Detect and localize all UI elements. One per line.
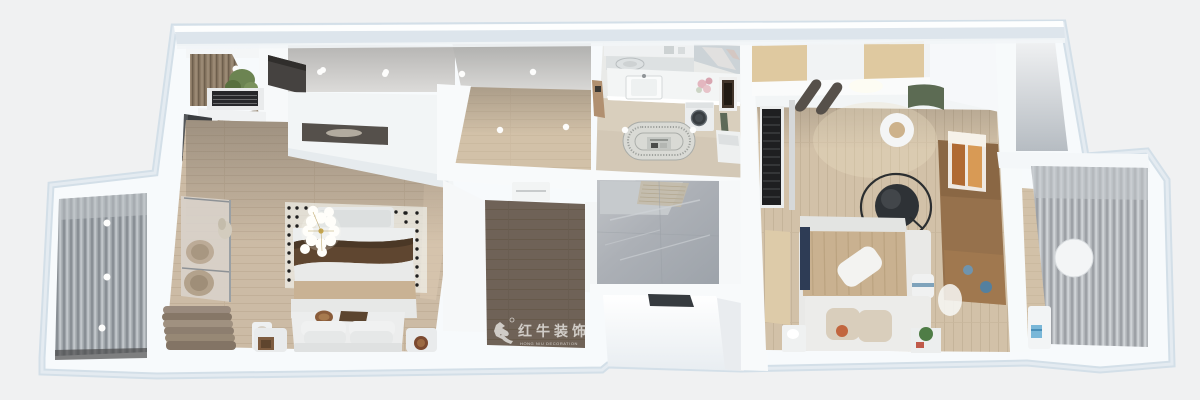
svg-text:红: 红 <box>518 323 532 339</box>
svg-text:饰: 饰 <box>572 323 586 339</box>
svg-text:HONG NIU DECORATION: HONG NIU DECORATION <box>520 341 578 346</box>
svg-text:装: 装 <box>553 323 569 339</box>
svg-text:牛: 牛 <box>536 323 550 339</box>
